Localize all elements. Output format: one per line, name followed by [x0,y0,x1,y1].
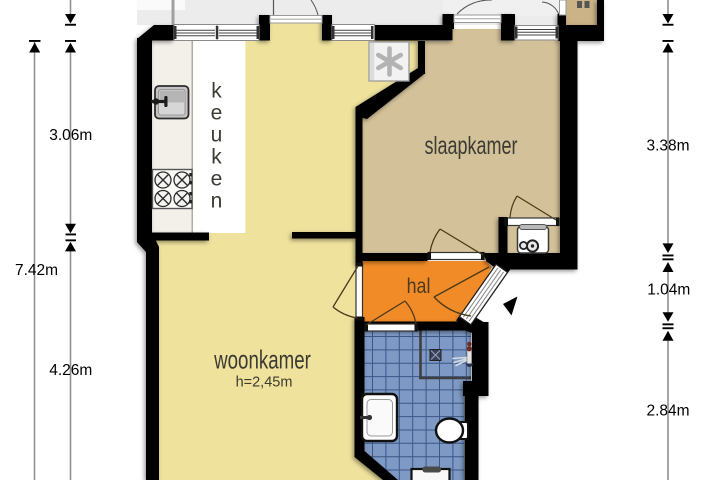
svg-text:u: u [211,124,223,147]
svg-text:hal: hal [407,275,431,299]
svg-text:e: e [211,102,223,125]
svg-text:3.38m: 3.38m [646,138,689,155]
svg-text:k: k [211,80,222,103]
svg-text:4.26m: 4.26m [49,362,92,379]
svg-text:woonkamer: woonkamer [213,344,311,374]
svg-text:h=2,45m: h=2,45m [236,375,293,391]
svg-text:1.04m: 1.04m [647,282,690,299]
svg-text:slaapkamer: slaapkamer [425,131,518,160]
svg-text:2.84m: 2.84m [646,403,689,420]
svg-text:7.42m: 7.42m [15,262,58,279]
svg-text:n: n [211,190,223,213]
svg-text:k: k [211,146,222,169]
svg-text:e: e [211,168,223,191]
svg-text:3.06m: 3.06m [49,127,92,144]
